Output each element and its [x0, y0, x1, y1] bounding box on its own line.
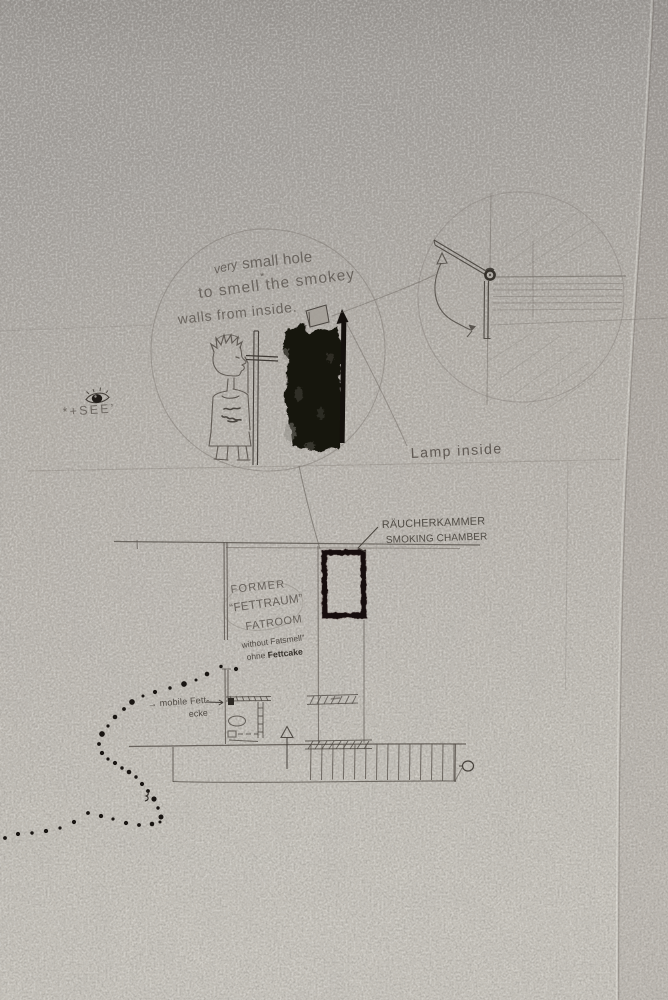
- svg-text:ohne: ohne: [246, 650, 266, 662]
- svg-text:ecke: ecke: [188, 708, 208, 719]
- svg-text:*: *: [260, 271, 265, 283]
